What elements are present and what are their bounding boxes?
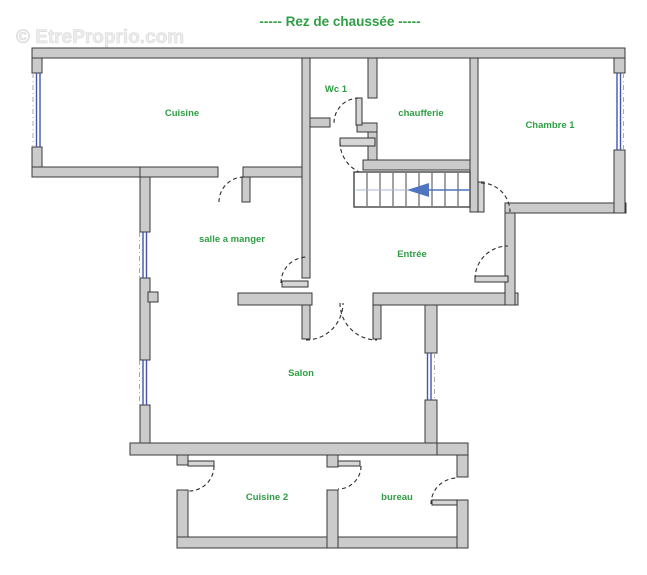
door-arc-wc1: [334, 98, 359, 123]
door-leaf-wc1: [356, 98, 362, 125]
room-label-bureau: bureau: [381, 492, 413, 503]
room-label-cuisine: Cuisine: [165, 108, 199, 119]
door-arc-entree: [475, 246, 508, 279]
watermark-text: © EtreProprio.com: [16, 27, 184, 48]
floor-plan-svg: © EtreProprio.com ----- Rez de chaussée …: [0, 0, 647, 575]
room-label-salle-a-manger: salle a manger: [199, 234, 265, 245]
door-arc-double-right: [340, 303, 377, 340]
room-label-salon: Salon: [288, 368, 314, 379]
door-leaf-bureau-east: [432, 500, 457, 505]
window-icon-salon-east: [428, 353, 435, 400]
door-leaf-salle-a-manger: [282, 281, 308, 287]
door-leaf-entree: [475, 276, 508, 282]
floor-plan-page: © EtreProprio.com ----- Rez de chaussée …: [0, 0, 647, 575]
staircase: [354, 172, 470, 207]
door-arc-double-left: [306, 303, 343, 340]
window-icon-salon-west-upper: [140, 232, 147, 278]
room-label-chaufferie: chaufferie: [398, 108, 443, 119]
room-label-cuisine2: Cuisine 2: [246, 492, 288, 503]
room-label-entree: Entrée: [397, 249, 427, 260]
page-title: ----- Rez de chaussée -----: [259, 14, 420, 29]
door-leaf-chaufferie: [340, 138, 375, 146]
door-leaf-cuisine2-bureau: [338, 461, 360, 466]
room-label-wc1: Wc 1: [325, 84, 348, 95]
door-arc-cuisine: [219, 177, 244, 202]
door-leaf-cuisine2-west: [188, 461, 214, 466]
door-leaf-chambre1: [478, 182, 484, 212]
door-arc-cuisine2-west: [189, 466, 214, 491]
room-label-chambre1: Chambre 1: [525, 120, 575, 131]
window-icon-chambre1-east: [617, 73, 624, 150]
window-icon-cuisine-west: [33, 73, 40, 147]
window-icon-salon-west-lower: [140, 360, 147, 405]
door-arc-cuisine2-bureau: [338, 466, 361, 489]
